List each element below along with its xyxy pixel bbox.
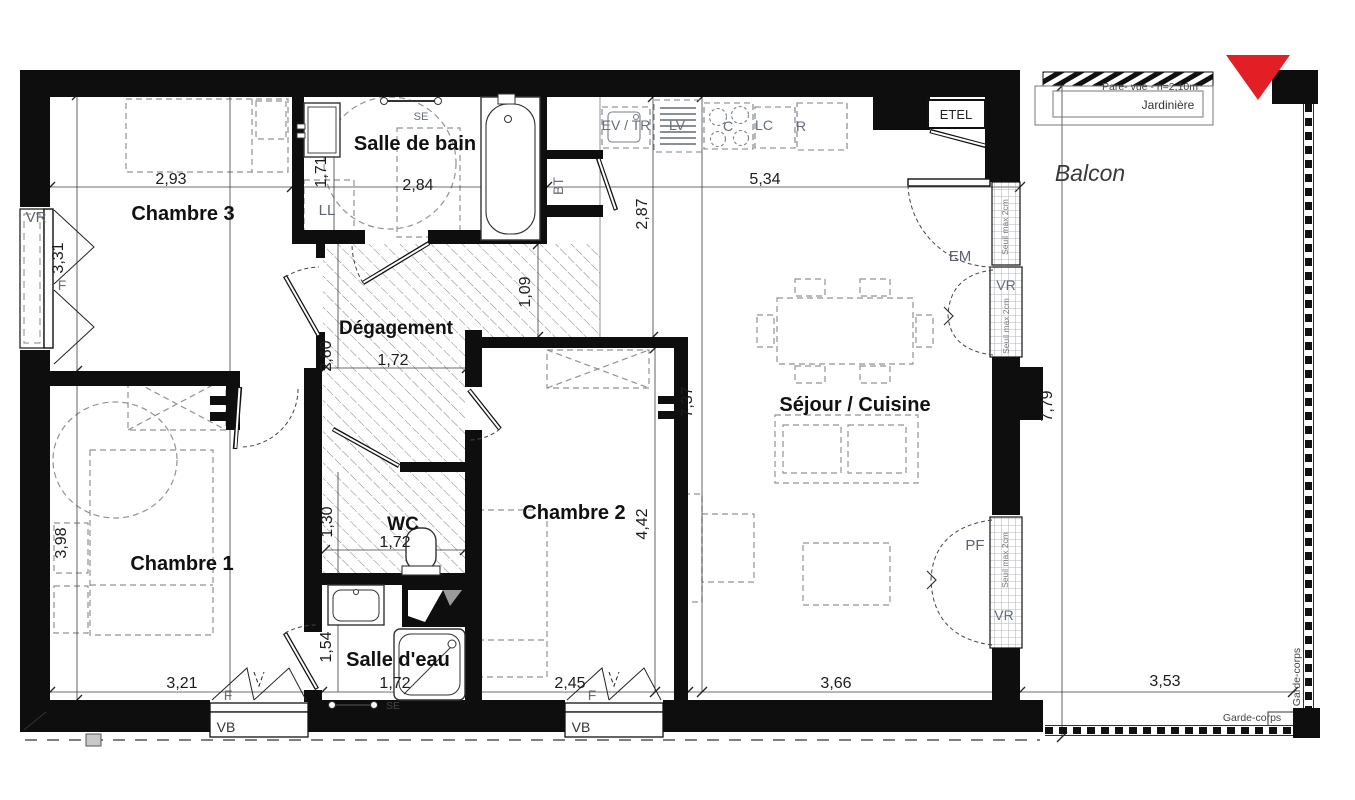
- label-em: EM: [949, 248, 972, 265]
- dim-sdb-width: 2,84: [402, 177, 433, 194]
- label-pf: PF: [965, 537, 984, 554]
- label-f-left: F: [58, 277, 67, 293]
- label-se-sde: SE: [386, 700, 400, 712]
- room-label-salle-de-bain: Salle de bain: [354, 133, 476, 155]
- label-vb1: VB: [217, 719, 236, 735]
- dim-ch2-width: 2,45: [554, 675, 585, 692]
- dim-ch3-width: 2,93: [155, 171, 186, 188]
- dim-wc-height: 1,30: [319, 506, 336, 537]
- label-ev-tr: EV / TR: [602, 117, 651, 133]
- label-seuil-top: Seuil max 2cm: [1000, 199, 1010, 255]
- label-vb2: VB: [572, 719, 591, 735]
- dim-kitchen-width: 5,34: [749, 171, 780, 188]
- dim-kitchen-height: 2,87: [634, 198, 651, 229]
- dim-sdb-height: 1,71: [313, 156, 330, 187]
- dim-ch1-height: 3,98: [53, 527, 70, 558]
- dim-sde-width: 1,72: [379, 675, 410, 692]
- dim-ch1-width: 3,21: [166, 675, 197, 692]
- room-label-wc: WC: [387, 514, 419, 535]
- label-se-sdb: SE: [414, 111, 429, 123]
- room-label-chambre2: Chambre 2: [522, 502, 625, 524]
- exterior-post: [86, 734, 101, 746]
- label-lv: LV: [669, 117, 686, 133]
- dim-sejour-height: 7,37: [679, 386, 696, 417]
- dim-ch2-height: 4,42: [634, 508, 651, 539]
- dim-deg-height2: 1,09: [517, 276, 534, 307]
- label-pare-vue: Pare- vue - h=2,10m: [1102, 81, 1198, 93]
- dim-sde-height: 1,54: [318, 631, 335, 662]
- floor-plan: Chambre 3 Salle de bain Dégagement Chamb…: [0, 0, 1355, 800]
- label-f-bottom1: F: [224, 687, 233, 703]
- label-jardiniere: Jardinière: [1142, 98, 1195, 112]
- label-seuil-bottom: Seuil max 2cm: [1000, 532, 1010, 588]
- label-bt: BT: [550, 177, 566, 195]
- label-garde-corps-bottom: Garde-corps: [1223, 712, 1281, 724]
- dim-deg-width: 1,72: [377, 352, 408, 369]
- room-label-balcon: Balcon: [1055, 160, 1125, 186]
- label-ll: LL: [319, 202, 336, 219]
- label-lc: LC: [755, 117, 773, 133]
- dim-wc-width: 1,72: [379, 534, 410, 551]
- dim-ch3-height: 3,31: [50, 242, 67, 273]
- label-f-bottom2: F: [588, 687, 597, 703]
- room-label-degagement: Dégagement: [339, 318, 454, 339]
- room-label-chambre3: Chambre 3: [131, 203, 234, 225]
- label-seuil-mid: Seuil max 2cm: [1001, 298, 1011, 354]
- label-vr-right-top: VR: [996, 277, 1015, 293]
- label-r: R: [796, 118, 806, 134]
- label-etel: ETEL: [940, 107, 973, 122]
- room-label-chambre1: Chambre 1: [130, 553, 233, 575]
- label-vr-right-bottom: VR: [994, 607, 1013, 623]
- label-c: C: [723, 118, 733, 134]
- dim-deg-height: 2,60: [318, 340, 335, 371]
- label-garde-corps-right: Garde-corps: [1291, 648, 1303, 706]
- dim-balcon-height: 7,79: [1039, 390, 1056, 421]
- dim-sejour-width: 3,66: [820, 675, 851, 692]
- dim-balcon-width: 3,53: [1149, 673, 1180, 690]
- room-label-sejour-cuisine: Séjour / Cuisine: [779, 394, 930, 416]
- room-label-salle-deau: Salle d'eau: [346, 649, 450, 671]
- label-vr-left: VR: [26, 209, 47, 226]
